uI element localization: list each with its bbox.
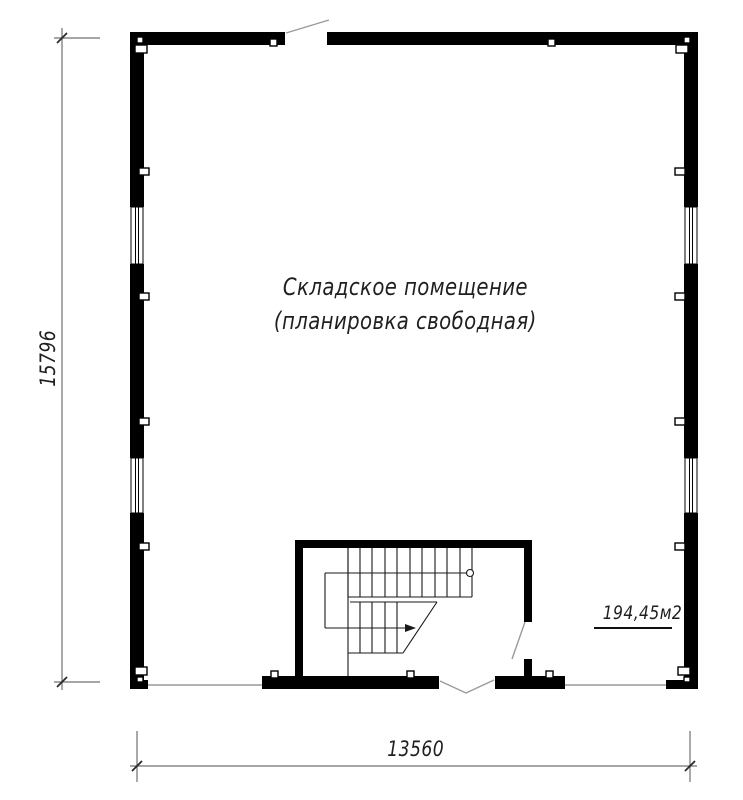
marker-icon: [137, 677, 143, 682]
stair-enclosure: [295, 540, 532, 689]
marker-icon: [137, 37, 143, 43]
outer-walls: [130, 32, 698, 689]
marker-icon: [135, 45, 147, 53]
dim-width-label: 13560: [328, 737, 503, 761]
windows: [131, 207, 697, 513]
top-wall-left: [130, 32, 285, 45]
marker-icon: [675, 543, 685, 550]
walking-line-start: [467, 570, 474, 577]
doors: [286, 20, 525, 693]
room-label-line2: (планировка свободная): [274, 304, 537, 338]
marker-icon: [271, 671, 278, 678]
left-wall-lower: [130, 513, 144, 689]
marker-icon: [675, 168, 685, 175]
walking-line-arrow: [405, 624, 416, 632]
stair-wall-top: [295, 540, 532, 548]
marker-icon: [675, 293, 685, 300]
entry-door-swing: [286, 20, 329, 33]
dimension-lines: [54, 28, 697, 782]
stairwell-door-swing: [512, 622, 525, 659]
floor-plan-drawing: [0, 0, 743, 800]
marker-icon: [676, 45, 688, 53]
double-door-swing-bottom: [440, 680, 494, 693]
room-label-line1: Складское помещение: [282, 270, 527, 304]
stair-wall-right-stub: [524, 659, 532, 680]
left-wall-upper: [130, 32, 144, 207]
right-wall-middle: [684, 264, 698, 458]
right-wall-lower: [684, 513, 698, 689]
top-wall-right: [327, 32, 698, 45]
wall-markers: [135, 37, 690, 682]
marker-icon: [139, 418, 149, 425]
marker-icon: [684, 677, 690, 682]
window-left-lower-icon: [131, 458, 143, 513]
staircase: [325, 548, 474, 676]
right-wall-upper: [684, 32, 698, 207]
marker-icon: [675, 418, 685, 425]
marker-icon: [684, 37, 690, 43]
marker-icon: [139, 168, 149, 175]
floor-plan-canvas: Складское помещение (планировка свободна…: [0, 0, 743, 800]
window-right-lower-icon: [685, 458, 697, 513]
bottom-wall-right-footing: [666, 680, 698, 689]
dim-height-label: 15796: [36, 318, 60, 398]
window-right-upper-icon: [685, 207, 697, 264]
marker-icon: [546, 671, 553, 678]
marker-icon: [270, 39, 277, 46]
stair-wall-right: [524, 548, 532, 622]
marker-icon: [407, 671, 414, 678]
window-left-upper-icon: [131, 207, 143, 264]
marker-icon: [139, 543, 149, 550]
marker-icon: [139, 293, 149, 300]
stair-wall-left: [295, 540, 303, 689]
room-label: Складское помещение (планировка свободна…: [240, 270, 570, 338]
marker-icon: [135, 667, 147, 675]
area-label: 194,45м2: [594, 602, 672, 629]
marker-icon: [678, 667, 690, 675]
marker-icon: [548, 39, 555, 46]
